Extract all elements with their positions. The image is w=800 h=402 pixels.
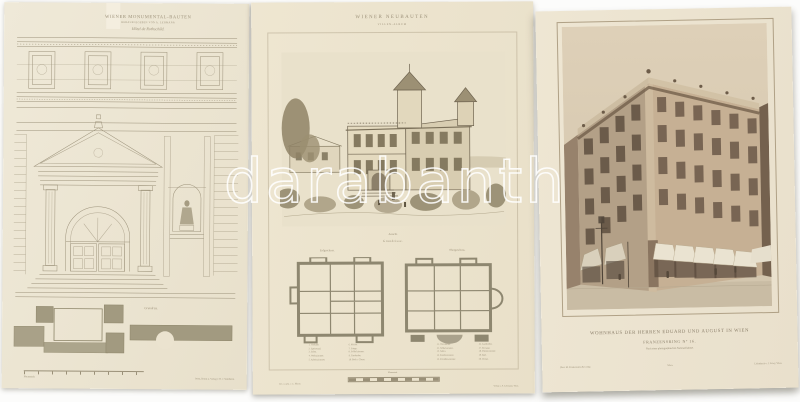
villa-lithograph [279, 49, 508, 228]
legend-left-col1: 1. Vorhalle. 2. Speisesaal. 3. Salon. 4.… [309, 344, 325, 362]
plan-left-label: Erdgeschoss. [297, 249, 357, 253]
auction-lot-photo: WIENER MONUMENTAL-BAUTEN HERAUSGEGEBEN V… [0, 0, 800, 402]
left-print-imprint: Wien, Druck u. Verlag v. R. v. Waldheim. [195, 377, 235, 380]
plan-right-label: Obergeschoss. [427, 249, 487, 253]
left-print-scale-label: Maassstab. [24, 375, 35, 378]
left-print-sheet: WIENER MONUMENTAL-BAUTEN HERAUSGEGEBEN V… [2, 2, 250, 390]
middle-print-sheet: WIENER NEUBAUTEN VILLEN-ALBUM [251, 1, 535, 394]
villa-floor-plans [282, 257, 506, 348]
middle-print-scale-bar [348, 377, 440, 382]
right-print-caption-line3: Nach einer photographischen Naturaufnahm… [552, 345, 788, 353]
right-print-sheet: WOHNHAUS DER HERREN EDUARD UND AUGUST IN… [535, 7, 798, 393]
left-print-scale-bar [24, 370, 144, 375]
left-print-title: WIENER MONUMENTAL-BAUTEN [48, 13, 248, 20]
building-photograph [562, 23, 772, 310]
middle-print-imprint-left: Gez. u. gest. v. C. Mayer. [279, 383, 301, 386]
right-print-imprint-center: Wien. [640, 363, 700, 367]
right-print-imprint-left: Phot. M. Frankenstein & Comp. [560, 365, 591, 369]
portal-elevation-drawing [8, 34, 244, 302]
legend-right-col2: 16. Garderobe. 17. Terrasse. 18. Dienerz… [479, 344, 496, 362]
right-print-imprint-right: Lichtdruck v. J. Löwy, Wien. [754, 362, 782, 366]
middle-print-subtitle: VILLEN-ALBUM [292, 23, 492, 27]
middle-print-scale-label: Maassstab. [348, 372, 438, 375]
legend-left-col2: 6. Küche. 7. Stiege. 8. Schlafzimmer. 9.… [349, 344, 366, 362]
plans-caption: Grundrisse. [343, 239, 443, 243]
middle-print-imprint-right: Verlag v. A. Lehmann, Wien. [493, 385, 518, 388]
middle-print-title: WIENER NEUBAUTEN [292, 15, 492, 22]
legend-right-col1: 11. Vorzimmer. 12. Schlafzimmer. 13. Sal… [437, 344, 456, 362]
left-print-subtitle: HERAUSGEGEBEN VON A. LEHMANN [48, 20, 248, 25]
villa-view-caption: Ansicht. [343, 233, 443, 237]
left-print-plate-name: Hôtel de Rothschild. [48, 25, 248, 31]
portal-ground-plan [10, 302, 242, 360]
